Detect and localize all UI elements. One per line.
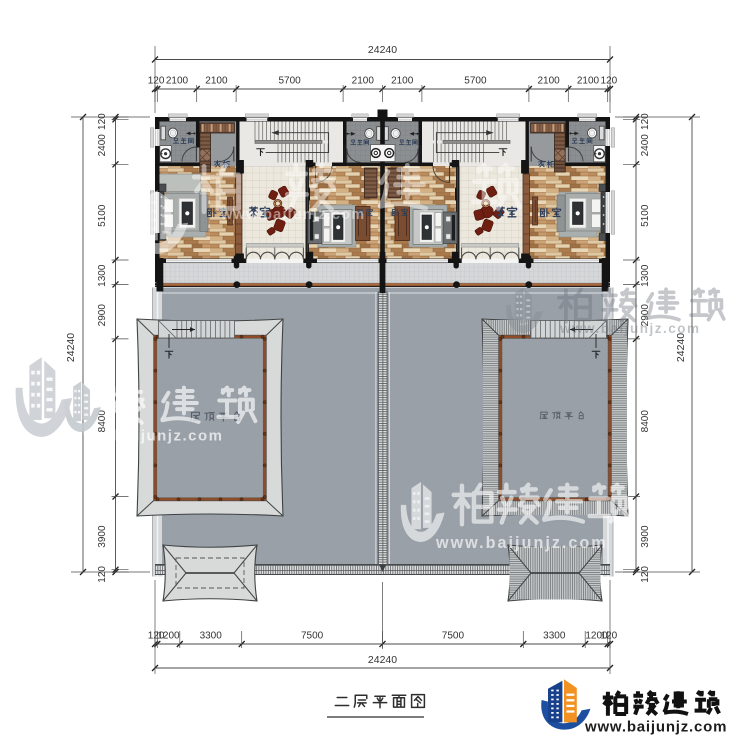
- svg-text:120: 120: [640, 566, 651, 583]
- svg-text:2100: 2100: [391, 76, 414, 87]
- svg-text:www.baijunjz.com: www.baijunjz.com: [584, 719, 727, 736]
- svg-text:5700: 5700: [278, 76, 301, 87]
- svg-text:2100: 2100: [352, 76, 375, 87]
- svg-text:120: 120: [640, 113, 651, 130]
- svg-text:24240: 24240: [368, 44, 397, 56]
- svg-text:7500: 7500: [301, 631, 324, 642]
- svg-text:2100: 2100: [166, 76, 189, 87]
- svg-text:7500: 7500: [442, 631, 465, 642]
- svg-text:5100: 5100: [97, 204, 108, 227]
- svg-text:120: 120: [97, 113, 108, 130]
- svg-text:24240: 24240: [65, 333, 77, 362]
- svg-text:1300: 1300: [97, 264, 108, 287]
- svg-text:www.baijunjz.com: www.baijunjz.com: [220, 207, 365, 223]
- svg-text:1300: 1300: [640, 264, 651, 287]
- svg-text:3300: 3300: [543, 631, 566, 642]
- svg-text:3300: 3300: [200, 631, 223, 642]
- svg-text:2400: 2400: [640, 134, 651, 157]
- svg-text:120: 120: [601, 631, 618, 642]
- svg-text:2100: 2100: [205, 76, 228, 87]
- svg-text:5700: 5700: [464, 76, 487, 87]
- svg-text:www.baijunjz.com: www.baijunjz.com: [559, 321, 701, 336]
- svg-text:2100: 2100: [577, 76, 600, 87]
- svg-text:www.baijunjz.com: www.baijunjz.com: [435, 534, 608, 552]
- svg-text:120: 120: [97, 566, 108, 583]
- svg-text:2400: 2400: [97, 134, 108, 157]
- svg-text:24240: 24240: [368, 654, 397, 666]
- svg-text:2900: 2900: [97, 304, 108, 327]
- svg-text:120: 120: [601, 76, 618, 87]
- svg-text:2100: 2100: [537, 76, 560, 87]
- svg-text:24240: 24240: [675, 333, 687, 362]
- svg-text:3900: 3900: [97, 525, 108, 548]
- svg-text:www.baijunjz.com: www.baijunjz.com: [69, 428, 223, 445]
- svg-text:120: 120: [148, 76, 165, 87]
- svg-text:3900: 3900: [640, 525, 651, 548]
- svg-text:5100: 5100: [640, 204, 651, 227]
- svg-text:1200: 1200: [157, 631, 180, 642]
- svg-text:8400: 8400: [640, 410, 651, 433]
